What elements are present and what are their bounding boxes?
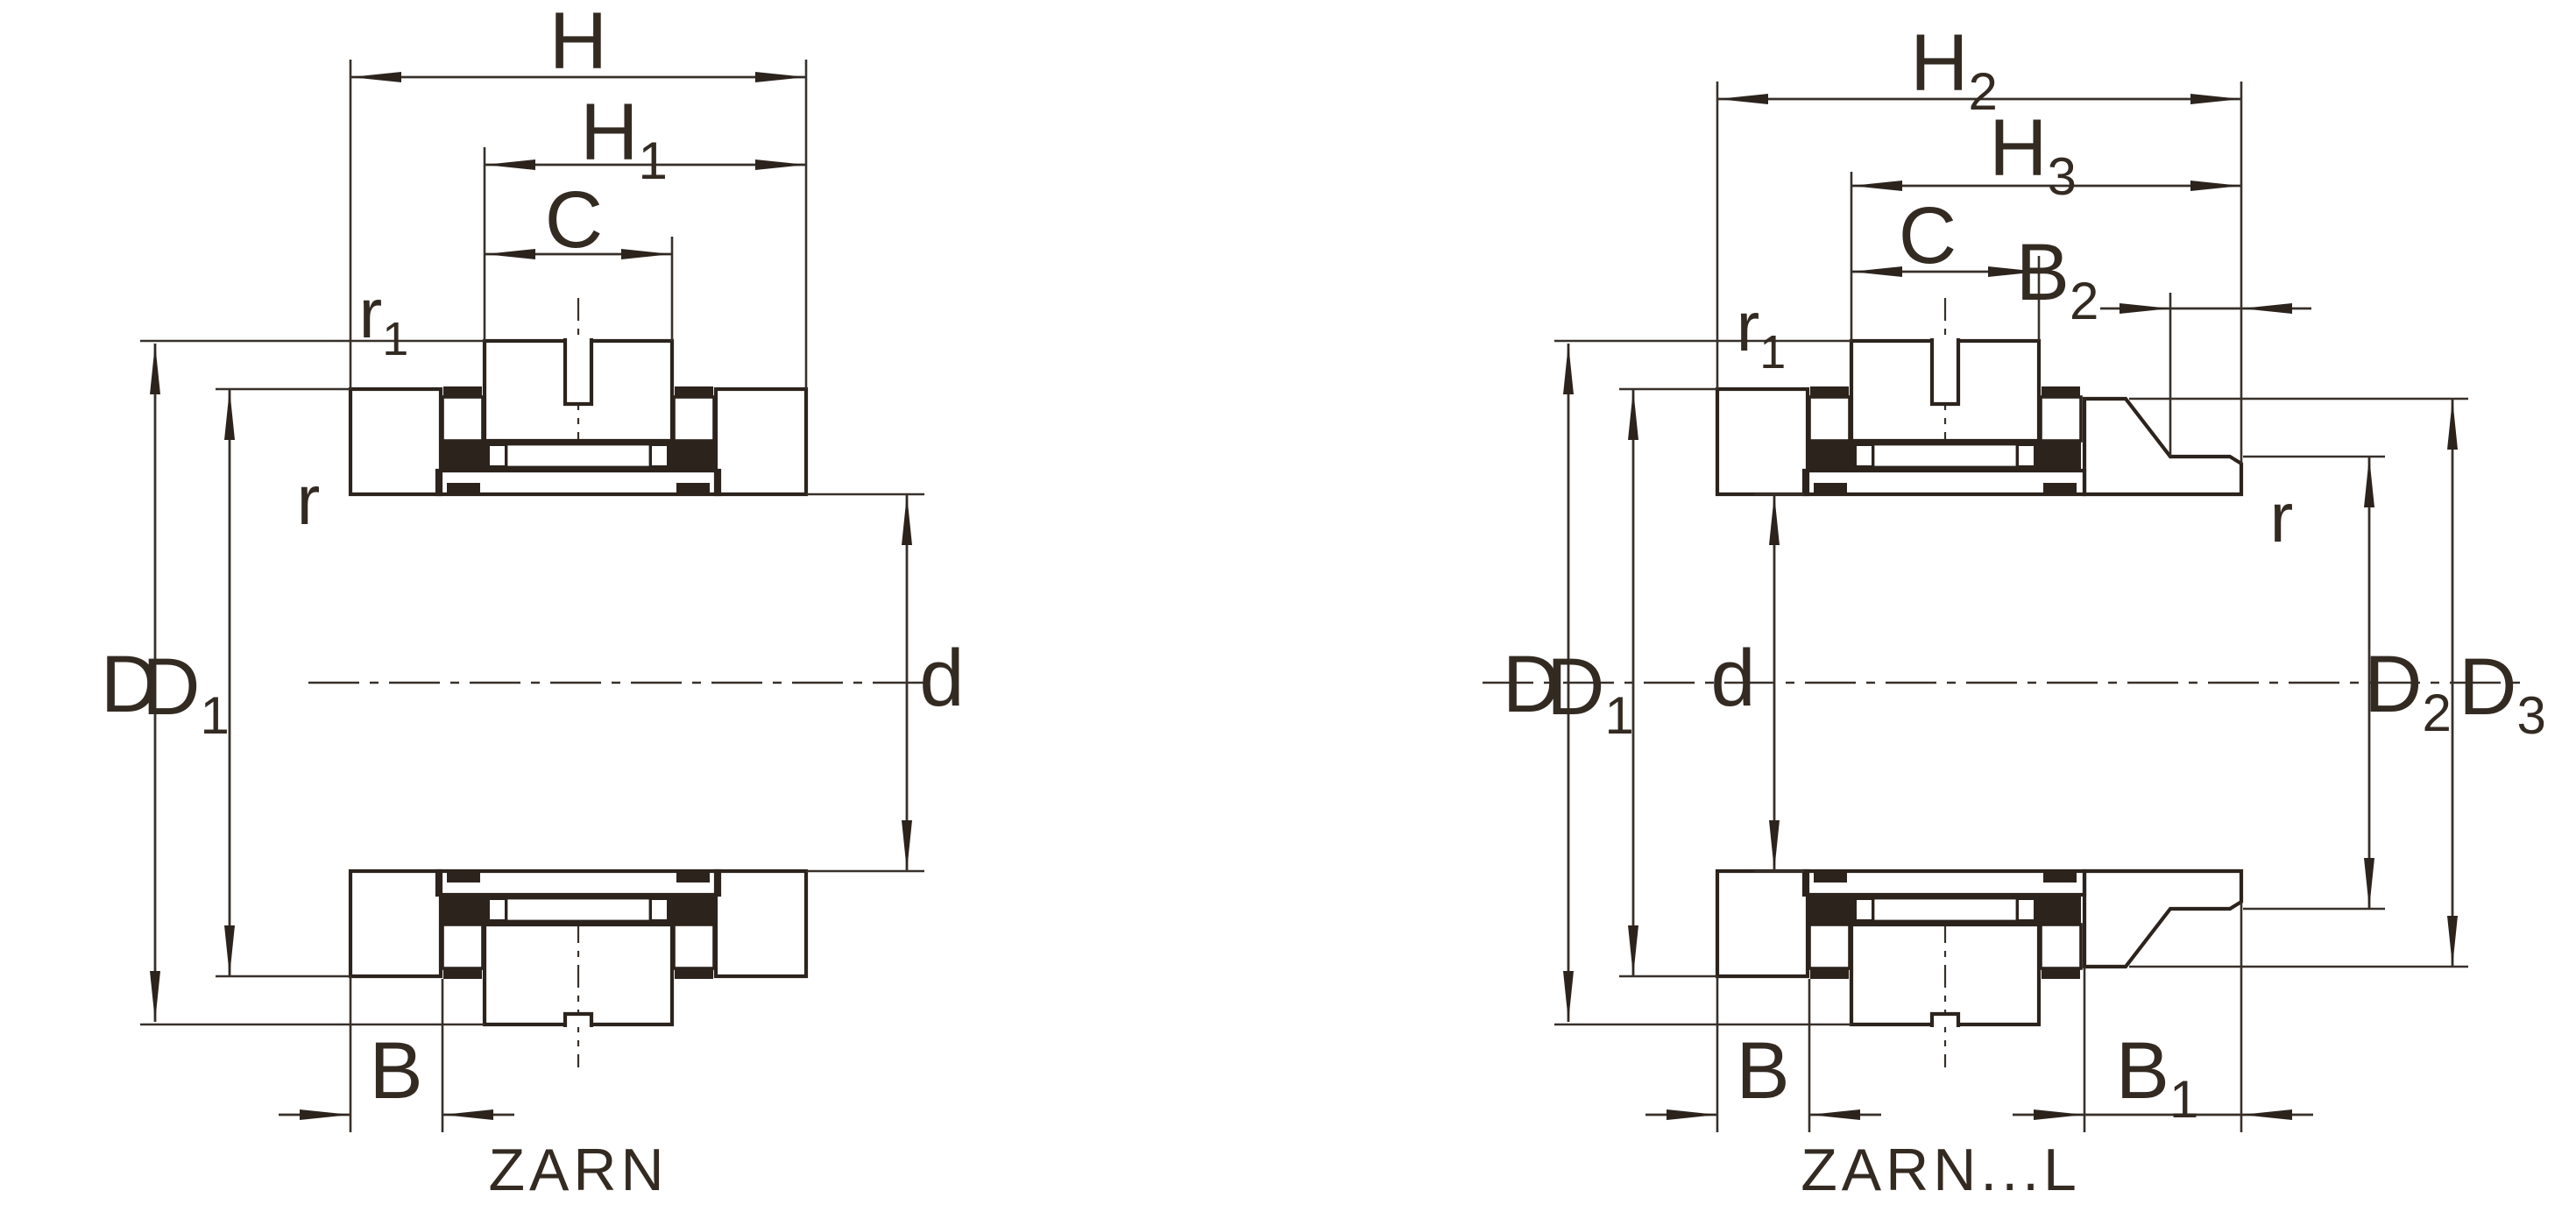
- axial-roller-left-2b: [1809, 925, 1850, 968]
- cage-cap-left: [443, 386, 482, 398]
- label-r1-2: r1: [1737, 287, 1787, 379]
- cage-cap-left-2b: [1810, 968, 1849, 979]
- cage-cap-left-2: [1810, 386, 1849, 398]
- cage-gap-left: [490, 446, 505, 465]
- lower-section-2: [1717, 871, 2241, 1027]
- label-D1: D1: [142, 642, 230, 745]
- upper-section: [350, 337, 806, 494]
- cage-gap-right-2: [2019, 446, 2034, 465]
- cage-gap-left-2b: [1857, 900, 1872, 919]
- washer-slot-fill-2: [1933, 337, 1957, 404]
- lower-section: [350, 871, 806, 1027]
- cage-lip-left-2b: [1814, 871, 1847, 882]
- cage-lip-right-b: [676, 871, 710, 882]
- extended-ring-step: [2084, 399, 2241, 494]
- cage-lip-right-2b: [2043, 871, 2077, 882]
- cage-gap-right: [652, 446, 667, 465]
- label-C: C: [545, 175, 603, 265]
- label-r-2: r: [2270, 478, 2294, 556]
- axial-roller-left-2: [1809, 397, 1850, 441]
- housing-washer-right: [716, 389, 806, 494]
- caption-zarn-l: ZARN...L: [1801, 1137, 2081, 1203]
- cage-lip-right: [676, 483, 710, 494]
- figure-zarn: H H1 C r1 r D D1 d B ZARN: [101, 0, 965, 1203]
- axial-roller-right-b: [674, 925, 714, 968]
- cage-cap-right: [675, 386, 713, 398]
- needle-roller-2: [1873, 444, 2017, 467]
- needle-roller: [506, 444, 650, 467]
- cage-gap-right-2b: [2019, 900, 2034, 919]
- label-r: r: [297, 461, 321, 539]
- cage-lip-left-2: [1814, 483, 1847, 494]
- cage-gap-right-b: [652, 900, 667, 919]
- label-H: H: [549, 0, 607, 86]
- figure-zarn-l: H2 H3 C B2 r1 r D D1 d D2 D3 B B1 ZARN..…: [1483, 18, 2546, 1203]
- technical-drawing-canvas: H H1 C r1 r D D1 d B ZARN: [0, 0, 2576, 1205]
- housing-washer-left-b: [350, 871, 441, 976]
- extended-ring-step-b: [2084, 871, 2241, 967]
- cage-cap-right-b: [675, 968, 713, 979]
- label-B1: B1: [2116, 1026, 2199, 1129]
- label-B2: B2: [2016, 228, 2099, 330]
- axial-roller-right-2b: [2041, 925, 2081, 968]
- axial-roller-left-b: [442, 925, 483, 968]
- housing-washer-right-b: [716, 871, 806, 976]
- cage-lip-left: [447, 483, 480, 494]
- label-d-2: d: [1710, 634, 1755, 723]
- needle-roller-b: [506, 898, 650, 921]
- bearing-drawing-page: H H1 C r1 r D D1 d B ZARN: [0, 0, 2576, 1205]
- dimensions-zarn-l: [1554, 82, 2468, 1132]
- label-B-2: B: [1736, 1026, 1789, 1116]
- cage-lip-right-2: [2043, 483, 2077, 494]
- washer-notch-fill-2: [1933, 1015, 1957, 1027]
- needle-roller-2b: [1873, 898, 2017, 921]
- label-B: B: [369, 1026, 422, 1116]
- housing-washer-left-2b: [1717, 871, 1808, 976]
- label-D2: D2: [2364, 640, 2452, 742]
- axial-roller-left: [442, 397, 483, 441]
- cage-lip-left-b: [447, 871, 480, 882]
- label-C2: C: [1899, 191, 1957, 280]
- housing-washer-left-2: [1717, 389, 1808, 494]
- label-D1-2: D1: [1546, 642, 1634, 745]
- cage-cap-right-2: [2042, 386, 2080, 398]
- label-H2: H2: [1910, 18, 1998, 121]
- cage-gap-left-b: [490, 900, 505, 919]
- cage-cap-left-b: [443, 968, 482, 979]
- label-H3: H3: [1989, 103, 2077, 206]
- washer-slot-fill: [566, 337, 591, 404]
- washer-notch-fill: [566, 1015, 591, 1027]
- axial-roller-right-2: [2041, 397, 2081, 441]
- caption-zarn: ZARN: [488, 1137, 668, 1203]
- upper-section-2: [1717, 337, 2241, 494]
- cage-cap-right-2b: [2042, 968, 2080, 979]
- cage-gap-left-2: [1857, 446, 1872, 465]
- axial-roller-right: [674, 397, 714, 441]
- label-D3: D3: [2459, 642, 2546, 745]
- label-d: d: [919, 634, 964, 723]
- label-r1: r1: [359, 274, 409, 365]
- housing-washer-left: [350, 389, 441, 494]
